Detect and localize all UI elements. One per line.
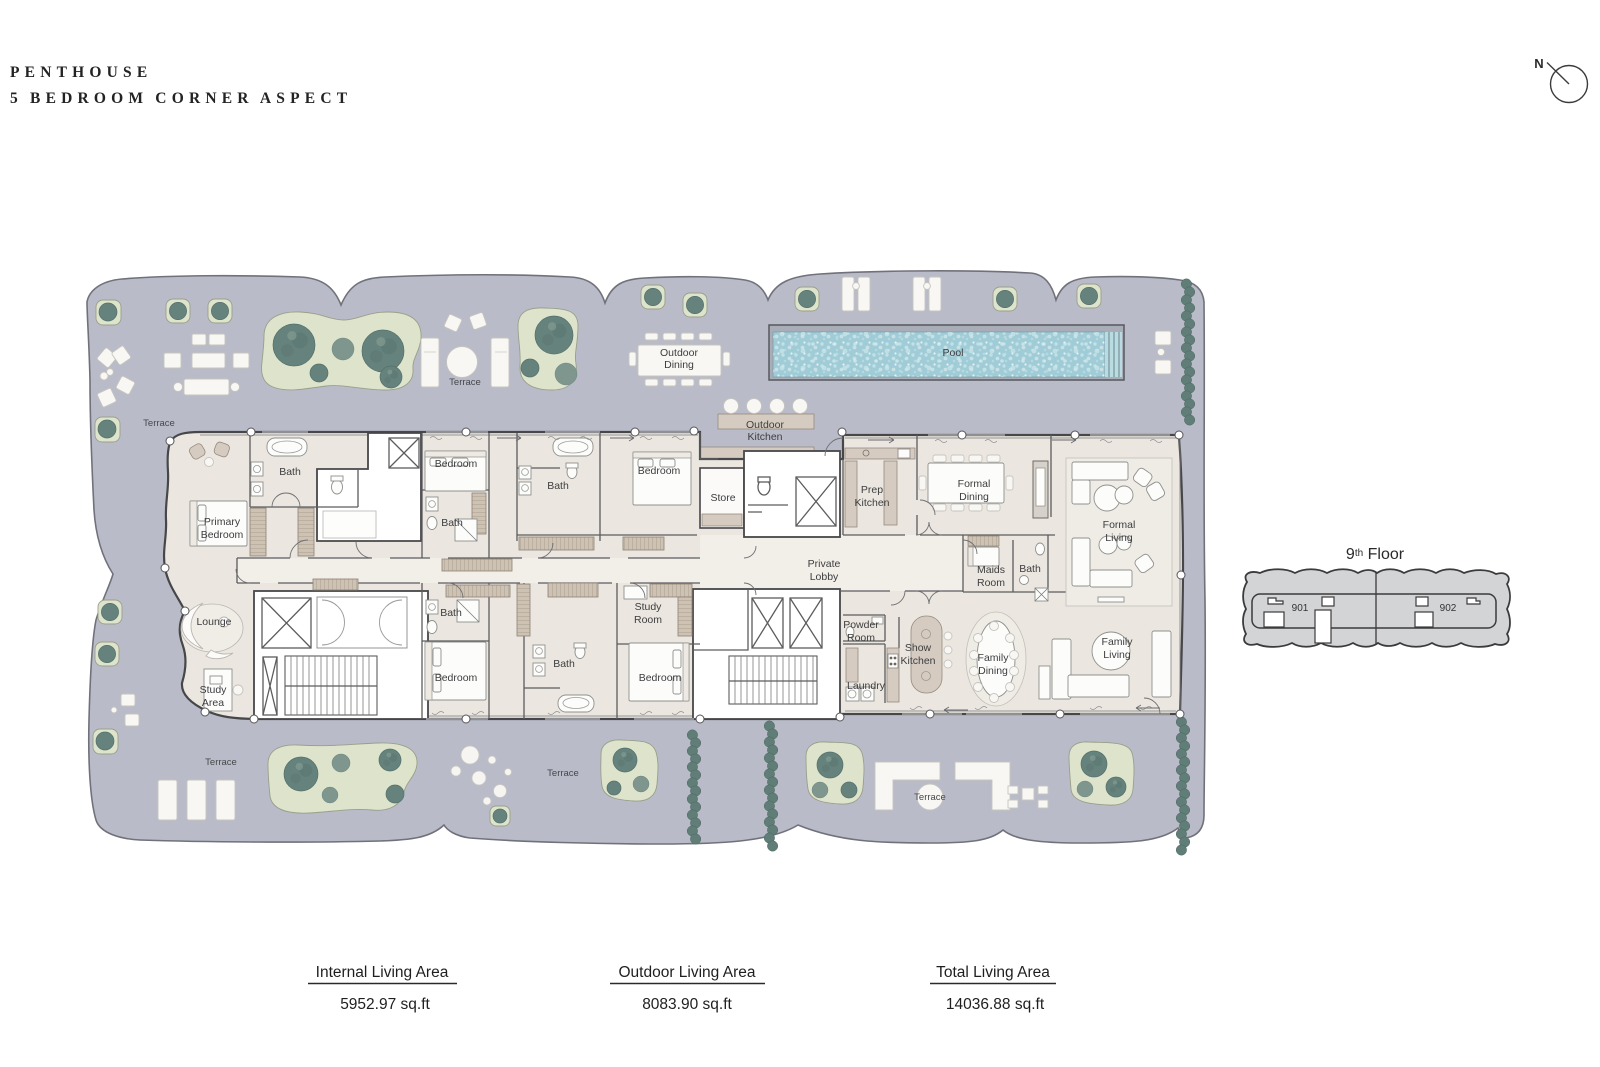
svg-text:Bath: Bath bbox=[279, 466, 301, 478]
svg-text:Kitchen: Kitchen bbox=[747, 431, 782, 443]
svg-text:Laundry: Laundry bbox=[847, 680, 886, 692]
svg-text:Store: Store bbox=[710, 492, 735, 504]
svg-text:Room: Room bbox=[977, 577, 1005, 589]
svg-text:8083.90 sq.ft: 8083.90 sq.ft bbox=[642, 996, 732, 1013]
svg-text:Kitchen: Kitchen bbox=[900, 655, 935, 667]
svg-text:Terrace: Terrace bbox=[205, 757, 237, 768]
svg-text:Terrace: Terrace bbox=[143, 418, 175, 429]
svg-text:Pool: Pool bbox=[942, 347, 963, 359]
svg-text:Lobby: Lobby bbox=[810, 571, 839, 583]
svg-text:Bath: Bath bbox=[1019, 563, 1041, 575]
svg-text:N: N bbox=[1534, 56, 1543, 71]
svg-text:Bath: Bath bbox=[440, 607, 462, 619]
svg-text:Private: Private bbox=[808, 558, 841, 570]
svg-text:Terrace: Terrace bbox=[547, 768, 579, 779]
svg-text:Study: Study bbox=[635, 601, 663, 613]
svg-text:Lounge: Lounge bbox=[196, 616, 231, 628]
svg-text:Living: Living bbox=[1103, 649, 1131, 661]
svg-text:Study: Study bbox=[200, 684, 228, 696]
svg-text:Total Living Area: Total Living Area bbox=[936, 964, 1050, 981]
svg-text:5952.97 sq.ft: 5952.97 sq.ft bbox=[340, 996, 430, 1013]
svg-text:Living: Living bbox=[1105, 532, 1133, 544]
svg-text:Family: Family bbox=[1102, 636, 1134, 648]
svg-text:Outdoor Living Area: Outdoor Living Area bbox=[618, 964, 755, 981]
svg-text:Formal: Formal bbox=[958, 478, 991, 490]
svg-text:Bedroom: Bedroom bbox=[435, 458, 478, 470]
svg-text:Primary: Primary bbox=[204, 516, 241, 528]
svg-text:Bath: Bath bbox=[547, 480, 569, 492]
svg-text:Dining: Dining bbox=[664, 359, 694, 371]
svg-text:Kitchen: Kitchen bbox=[854, 497, 889, 509]
svg-text:Prep: Prep bbox=[861, 484, 883, 496]
svg-text:9th Floor: 9th Floor bbox=[1346, 546, 1405, 563]
svg-text:Show: Show bbox=[905, 642, 932, 654]
svg-text:Room: Room bbox=[847, 632, 875, 644]
svg-text:Bedroom: Bedroom bbox=[638, 465, 681, 477]
svg-text:Internal Living Area: Internal Living Area bbox=[316, 964, 449, 981]
svg-text:Dining: Dining bbox=[959, 491, 989, 503]
svg-text:Maids: Maids bbox=[977, 564, 1005, 576]
svg-text:Bedroom: Bedroom bbox=[435, 672, 478, 684]
svg-text:Bath: Bath bbox=[441, 517, 463, 529]
svg-text:Terrace: Terrace bbox=[449, 377, 481, 388]
svg-text:901: 901 bbox=[1292, 603, 1309, 614]
svg-text:Bath: Bath bbox=[553, 658, 575, 670]
svg-text:Formal: Formal bbox=[1103, 519, 1136, 531]
svg-text:Outdoor: Outdoor bbox=[660, 347, 698, 359]
svg-text:Area: Area bbox=[202, 697, 224, 709]
svg-text:Room: Room bbox=[634, 614, 662, 626]
svg-text:Dining: Dining bbox=[978, 665, 1008, 677]
svg-text:Powder: Powder bbox=[843, 619, 879, 631]
svg-text:Outdoor: Outdoor bbox=[746, 419, 784, 431]
svg-text:902: 902 bbox=[1440, 603, 1457, 614]
svg-text:14036.88 sq.ft: 14036.88 sq.ft bbox=[946, 996, 1045, 1013]
svg-text:Bedroom: Bedroom bbox=[201, 529, 244, 541]
svg-text:Bedroom: Bedroom bbox=[639, 672, 682, 684]
svg-text:Family: Family bbox=[978, 652, 1010, 664]
svg-text:Terrace: Terrace bbox=[914, 792, 946, 803]
